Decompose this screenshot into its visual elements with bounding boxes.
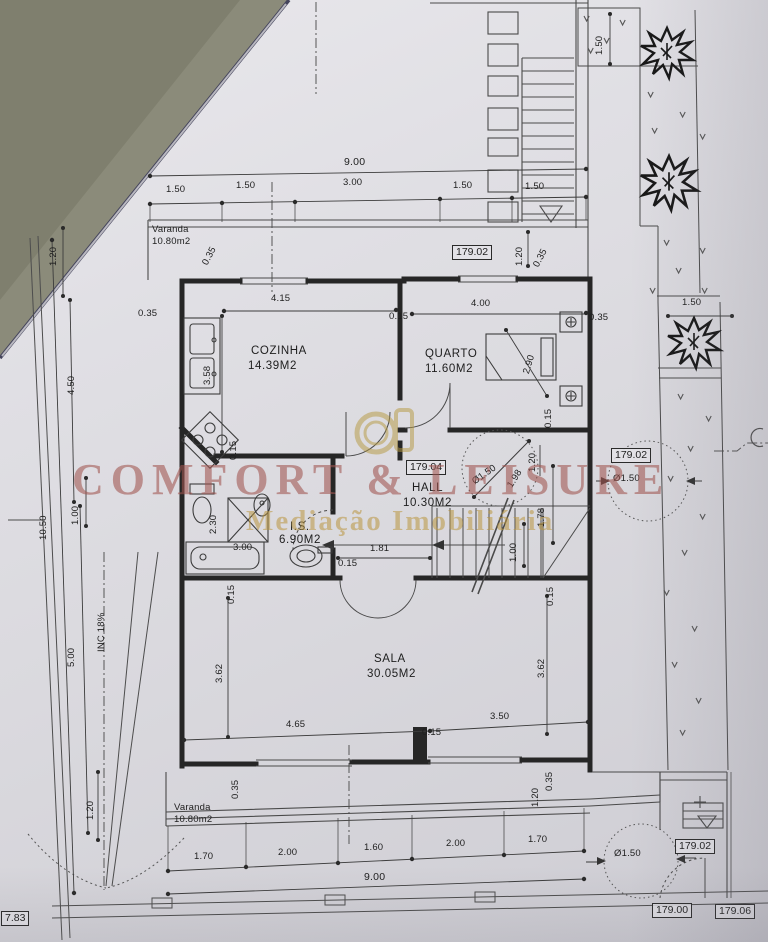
dim-hall-landing: 1.20 [527, 453, 538, 472]
level-label-street-b: 179.06 [715, 904, 755, 919]
level-label-street-a: 179.00 [652, 903, 692, 918]
dim-sala-tl: 0.15 [226, 585, 237, 604]
dim-top-total: 9.00 [344, 156, 365, 168]
room-sala-name: SALA [374, 653, 406, 665]
dim-bottom-total: 9.00 [364, 871, 385, 883]
dim-sala-left: 3.62 [214, 664, 225, 683]
dim-circle-bottom: Ø1.50 [614, 848, 641, 859]
level-label-top: 179.02 [452, 245, 492, 260]
dim-circle-right: Ø1.50 [613, 473, 640, 484]
varanda-bottom-area: 10.80m2 [174, 814, 212, 825]
dim-left-wall: 0.35 [138, 308, 157, 319]
dim-top-chain-4: 1.50 [525, 181, 544, 192]
room-is-name: I.S. [290, 521, 310, 533]
dim-quarto-wall: 0.35 [589, 312, 608, 323]
dim-garden-top: 1.50 [594, 36, 605, 55]
room-hall-name: HALL [412, 482, 443, 494]
dim-left-a: 1.20 [48, 247, 59, 266]
level-label-entrance: 179.02 [675, 839, 715, 854]
level-label-hall: 179.04 [406, 460, 446, 475]
dim-top-chain-3: 1.50 [453, 180, 472, 191]
dim-left-e: 1.20 [85, 801, 96, 820]
dim-hall-diag: 1.98 [505, 468, 525, 490]
dim-sala-wr: 3.50 [490, 711, 509, 722]
plan-labels: Varanda 10.80m2 9.00 1.50 1.50 3.00 1.50… [0, 0, 768, 942]
dim-top-chain-2: 3.00 [343, 177, 362, 188]
dim-is-height: 2.30 [208, 515, 219, 534]
room-is-area: 6.90M2 [279, 534, 321, 546]
dim-left-total: 10.50 [38, 515, 49, 540]
dim-ramp-incline: INC 18% [96, 613, 107, 652]
dim-sala-corner: 1.20 [530, 788, 541, 807]
varanda-top-area: 10.80m2 [152, 236, 190, 247]
dim-quarto-bed: 2.90 [521, 354, 537, 376]
dim-sala-right: 3.62 [536, 659, 547, 678]
dim-sala-br: 0.35 [544, 772, 555, 791]
dim-left-b: 4.50 [66, 376, 77, 395]
dim-left-d: 5.00 [66, 648, 77, 667]
dim-wall-top-right: 0.35 [531, 247, 550, 269]
level-label-right: 179.02 [611, 448, 651, 463]
dim-is-width: 3.00 [233, 542, 252, 553]
dim-sala-bl: 0.35 [230, 780, 241, 799]
dim-bottom-chain-3: 2.00 [446, 838, 465, 849]
room-sala-area: 30.05M2 [367, 668, 416, 680]
room-hall-area: 10.30M2 [403, 497, 452, 509]
room-cozinha-name: COZINHA [251, 345, 307, 357]
varanda-bottom-name: Varanda [174, 802, 211, 813]
dim-cozinha-wall: 0.15 [389, 311, 408, 322]
level-label-corner: 7.83 [1, 911, 29, 926]
dim-quarto-width: 4.00 [471, 298, 490, 309]
dim-wall-top-left: 0.35 [200, 245, 219, 267]
dim-stair-b: 1.00 [508, 543, 519, 562]
dim-stair-wall: 0.15 [545, 587, 556, 606]
dim-sala-wl: 4.65 [286, 719, 305, 730]
dim-top-chain-0: 1.50 [166, 184, 185, 195]
dim-cozinha-width: 4.15 [271, 293, 290, 304]
dim-top-chain-1: 1.50 [236, 180, 255, 191]
dim-hall-wall: 0.15 [338, 558, 357, 569]
room-quarto-name: QUARTO [425, 348, 477, 360]
room-cozinha-area: 14.39M2 [248, 360, 297, 372]
dim-stair-a: 1.78 [536, 508, 547, 527]
varanda-top-name: Varanda [152, 224, 189, 235]
dim-cozinha-height: 3.58 [202, 366, 213, 385]
dim-varanda-depth: 1.20 [514, 247, 525, 266]
dim-bottom-chain-2: 1.60 [364, 842, 383, 853]
dim-bottom-chain-4: 1.70 [528, 834, 547, 845]
dim-bottom-chain-1: 2.00 [278, 847, 297, 858]
room-quarto-area: 11.60M2 [425, 363, 473, 375]
dim-garden-tree: 1.50 [682, 297, 701, 308]
dim-bottom-chain-0: 1.70 [194, 851, 213, 862]
dim-hall-circle: Ø1.50 [470, 463, 498, 487]
dim-left-c: 1.00 [70, 506, 81, 525]
dim-hall-width: 1.81 [370, 543, 389, 554]
dim-sala-wall: 0.15 [422, 727, 441, 738]
dim-quarto-door: 0.15 [543, 409, 554, 428]
dim-cozinha-corner: 0.15 [228, 441, 239, 460]
